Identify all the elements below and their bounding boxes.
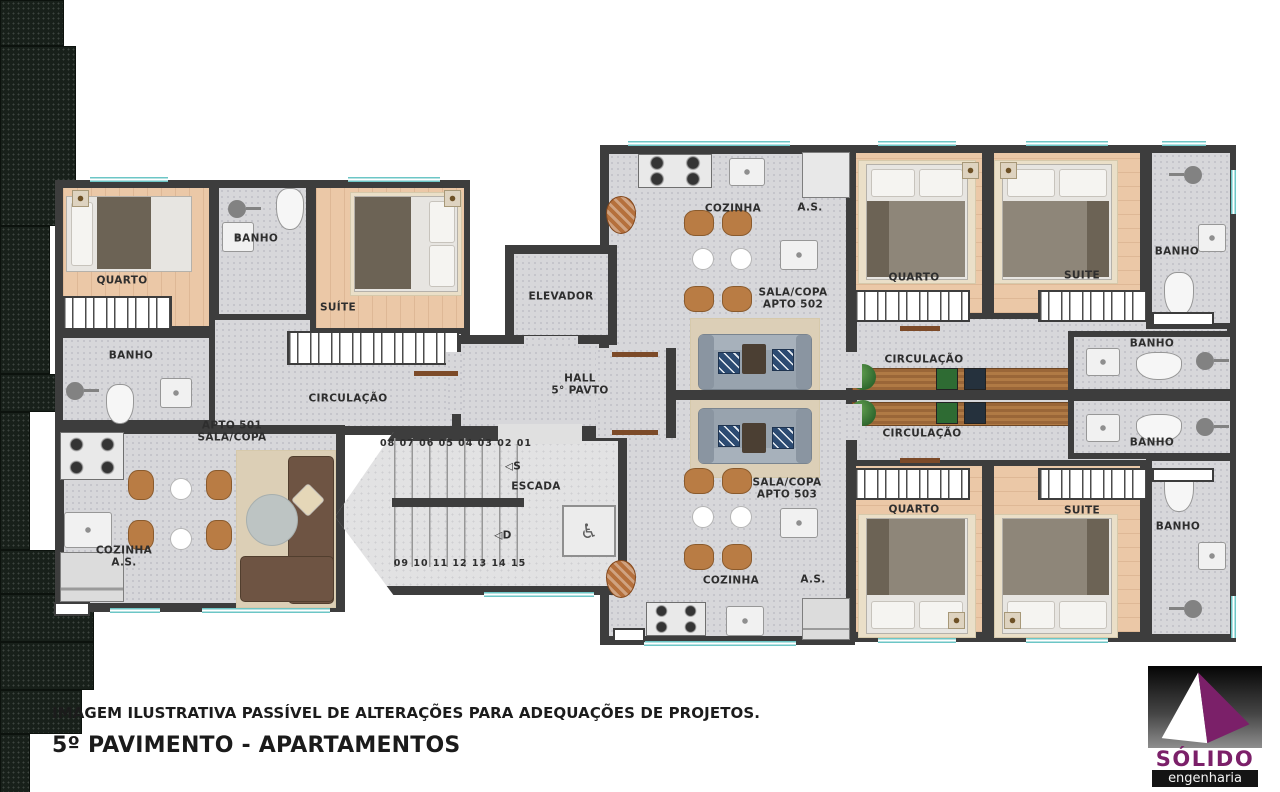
apto501-sofa-horizontal (240, 556, 334, 602)
laundry-sink-icon (780, 508, 818, 538)
dining-chair (722, 544, 752, 570)
bed-pillow (919, 169, 963, 197)
apto501-suite-label: SUÍTE (320, 301, 356, 314)
apto502-banho-social-label: BANHO (1130, 337, 1174, 350)
ceiling-lamp-icon (962, 162, 979, 179)
bath-counter (0, 0, 64, 46)
shower-icon (1184, 166, 1202, 184)
hall-label-line2: 5° PAVTO (551, 384, 608, 397)
apto501-banho-side-label: BANHO (109, 349, 153, 362)
bed-pillow (429, 201, 455, 243)
laundry-sink-icon (780, 240, 818, 270)
stairs-label: ESCADA (511, 480, 561, 493)
apto503-quarto-wardrobe (854, 468, 970, 500)
sink-icon (1086, 414, 1120, 442)
plate-icon (170, 528, 192, 550)
apto502-quarto-bed (866, 164, 968, 280)
stairs-landing-rail (392, 498, 524, 507)
apto501-cozinha-label-line2: A.S. (111, 556, 136, 569)
plate-icon (730, 248, 752, 270)
apto501-suite-bed (354, 196, 458, 292)
window (1162, 141, 1206, 146)
apto502-quarto-label: QUARTO (888, 271, 939, 284)
bed-blanket-fold (867, 519, 889, 595)
dining-chair (722, 286, 752, 312)
logo-tagline-text: engenharia (1152, 770, 1258, 787)
apto503-circulacao-label: CIRCULAÇÃO (882, 427, 961, 440)
shower-icon (1196, 352, 1214, 370)
dining-chair (128, 470, 154, 500)
apto502-sala-label-line2: APTO 502 (763, 298, 823, 311)
stove-icon (646, 602, 706, 636)
apto503-sala-label-line2: APTO 503 (757, 488, 817, 501)
apto503-sofa (698, 408, 812, 464)
elevator-door-opening (524, 336, 578, 348)
apto503-banho-social-label: BANHO (1130, 436, 1174, 449)
decor-item (936, 402, 958, 424)
apto502-suite-bed (1002, 164, 1112, 280)
apto502-kitchen-counter-left (0, 412, 30, 550)
dining-chair (722, 468, 752, 494)
wheelchair-icon: ♿ (580, 519, 598, 543)
dining-chair (684, 544, 714, 570)
apto502-as-label: A.S. (797, 201, 822, 214)
chevron-pillow (772, 349, 794, 371)
dining-chair (206, 520, 232, 550)
dining-chair (206, 470, 232, 500)
logo-pyramid-background (1148, 666, 1262, 748)
window (1231, 170, 1236, 214)
apto502-cozinha-label: COZINHA (705, 202, 761, 215)
window (1231, 596, 1236, 638)
toilet-icon (276, 188, 304, 230)
disclaimer-text: IMAGEM ILUSTRATIVA PASSÍVEL DE ALTERAÇÕE… (52, 704, 760, 722)
sofa-throw (742, 344, 766, 374)
apto503-kitchen-counter-left (0, 734, 30, 792)
sofa-arm (796, 409, 811, 463)
ceiling-lamp-icon (948, 612, 965, 629)
bedroom-door (900, 458, 940, 463)
window (484, 592, 594, 597)
sink-icon (1086, 348, 1120, 376)
sink-icon (1198, 224, 1226, 252)
floor-title: 5º PAVIMENTO - APARTAMENTOS (52, 733, 460, 758)
toilet-icon (106, 384, 134, 424)
laundry-appliance-icon (802, 152, 850, 198)
apto501-entry-door (414, 371, 458, 376)
apto501-banho-top-label: BANHO (234, 232, 278, 245)
window (90, 177, 168, 182)
apto502-entry-door (612, 352, 658, 357)
corridor-sideboard (852, 368, 1072, 392)
ceiling-lamp-icon (444, 190, 461, 207)
bed-blanket-fold (867, 201, 889, 277)
decor-item (964, 402, 986, 424)
bed-blanket (97, 197, 151, 269)
apto501-quarto-wardrobe (62, 296, 172, 330)
sink-icon (1198, 542, 1226, 570)
round-rug (246, 494, 298, 546)
apto503-suite-label: SUITE (1064, 504, 1100, 517)
chevron-pillow (772, 427, 794, 449)
bed-pillow (429, 245, 455, 287)
apto503-dining-table (0, 642, 94, 690)
apto501-quarto-bed (66, 196, 192, 272)
apto501-unit-label-line2: SALA/COPA (198, 431, 267, 444)
decor-item (964, 368, 986, 390)
decor-item (936, 368, 958, 390)
plate-icon (730, 506, 752, 528)
stairs-upper-step-numbers: 08 07 06 05 04 03 02 01 (380, 438, 532, 450)
window (110, 608, 160, 613)
apto503-cozinha-label: COZINHA (703, 574, 759, 587)
sofa-throw (742, 423, 766, 453)
stairs-up-marker: ◁S (505, 460, 521, 473)
shower-icon (66, 382, 84, 400)
accessibility-area-box: ♿ (562, 505, 616, 557)
hall-to-501-opening (446, 352, 462, 414)
bed-pillow (71, 202, 93, 266)
apto502-suite-wardrobe (1038, 290, 1148, 322)
apto502-suite-label: SUITE (1064, 269, 1100, 282)
shower-icon (1184, 600, 1202, 618)
window (644, 641, 796, 646)
chevron-pillow (718, 352, 740, 374)
apto503-suite-wardrobe (1038, 468, 1148, 500)
window (1026, 638, 1108, 643)
window (348, 177, 440, 182)
kitchen-sink-icon (64, 512, 112, 548)
stove-icon (638, 154, 712, 188)
sofa-arm (699, 335, 714, 389)
sofa-arm (796, 335, 811, 389)
corridor-right-opening-lower (844, 404, 862, 440)
wall-niche (613, 628, 645, 642)
apto502-sofa (698, 334, 812, 390)
apto501-circulacao-label: CIRCULAÇÃO (308, 392, 387, 405)
bed-pillow (871, 169, 915, 197)
ceiling-lamp-icon (1000, 162, 1017, 179)
ceiling-lamp-icon (1004, 612, 1021, 629)
apto503-banho-suite-label: BANHO (1156, 520, 1200, 533)
kitchen-sink-icon (726, 606, 764, 636)
wall-niche (54, 602, 90, 616)
apto502-banho-suite-label: BANHO (1155, 245, 1199, 258)
floor-plan-page: ♿ (0, 0, 1280, 792)
stairs-down-marker: ◁D (494, 529, 512, 542)
chevron-pillow (718, 425, 740, 447)
bed-blanket-fold (1087, 201, 1109, 277)
dining-chair (684, 468, 714, 494)
apto503-as-label: A.S. (800, 573, 825, 586)
apto503-entry-door (612, 430, 658, 435)
ceiling-lamp-icon (72, 190, 89, 207)
solido-logo: SÓLIDO engenharia (1148, 666, 1262, 788)
apto501-suite-wardrobe (287, 331, 459, 365)
window (202, 608, 330, 613)
plate-icon (170, 478, 192, 500)
stairs-lower-step-numbers: 09 10 11 12 13 14 15 (394, 558, 526, 570)
bed-blanket (355, 197, 411, 289)
laundry-appliance-icon (802, 598, 850, 640)
bed-pillow (1059, 169, 1107, 197)
bedroom-door (900, 326, 940, 331)
bed-pillow (871, 601, 915, 629)
apto501-quarto-label: QUARTO (96, 274, 147, 287)
sofa-arm (699, 409, 714, 463)
window (878, 638, 956, 643)
window (878, 141, 956, 146)
window (628, 141, 790, 146)
plate-icon (692, 248, 714, 270)
corridor-right-opening-upper (844, 352, 862, 388)
sink-icon (160, 378, 192, 408)
apto503-quarto-label: QUARTO (888, 503, 939, 516)
elevator-label: ELEVADOR (528, 290, 593, 303)
bed-blanket-fold (1087, 519, 1109, 595)
dining-chair (684, 286, 714, 312)
wall-niche (1152, 468, 1214, 482)
plate-icon (692, 506, 714, 528)
corridor-sideboard (852, 402, 1072, 426)
kitchen-sink-icon (729, 158, 765, 186)
shower-icon (1196, 418, 1214, 436)
logo-brand-text: SÓLIDO (1148, 748, 1262, 770)
shower-icon (228, 200, 246, 218)
units-divider-wall (670, 390, 1080, 400)
toilet-icon (1136, 352, 1182, 380)
stove-icon (60, 432, 124, 480)
window (1026, 141, 1108, 146)
apto501-dining-table (0, 226, 50, 374)
apto502-circulacao-label: CIRCULAÇÃO (884, 353, 963, 366)
apto502-quarto-wardrobe (854, 290, 970, 322)
bed-pillow (1059, 601, 1107, 629)
toilet-icon (1164, 272, 1194, 316)
wall-niche (1152, 312, 1214, 326)
